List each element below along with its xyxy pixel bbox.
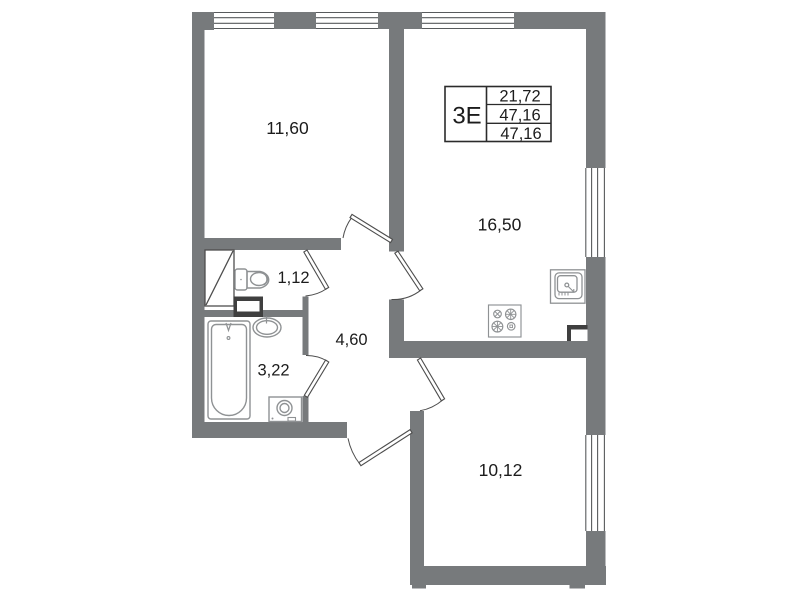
svg-text:4,60: 4,60 [335, 331, 367, 349]
svg-text:16,50: 16,50 [478, 215, 522, 235]
svg-text:10,12: 10,12 [479, 460, 523, 480]
svg-text:21,72: 21,72 [499, 88, 540, 106]
svg-text:47,16: 47,16 [500, 125, 541, 143]
svg-text:1,12: 1,12 [277, 269, 309, 287]
svg-text:47,16: 47,16 [499, 106, 540, 124]
svg-text:3Е: 3Е [452, 103, 481, 130]
svg-text:3,22: 3,22 [257, 362, 289, 380]
svg-text:11,60: 11,60 [266, 118, 309, 138]
